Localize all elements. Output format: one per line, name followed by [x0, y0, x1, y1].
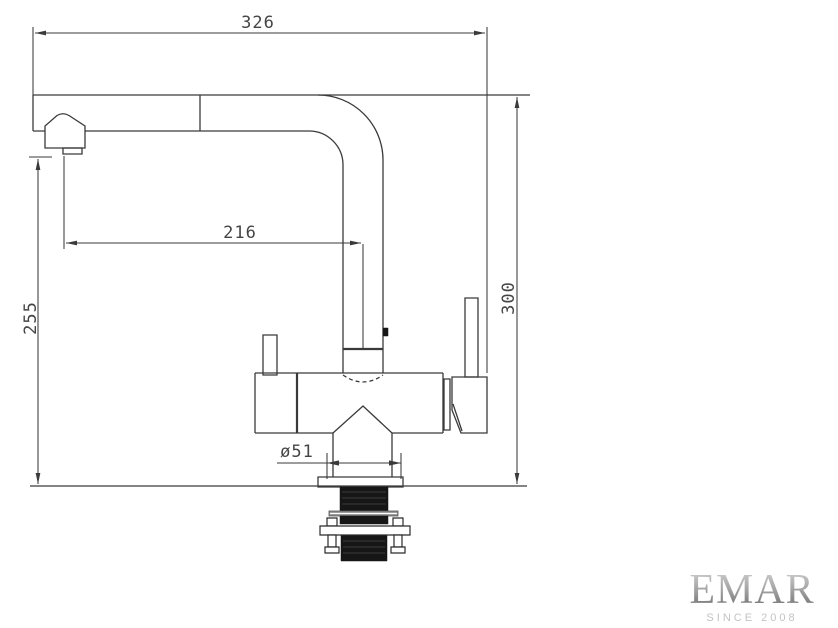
handle-connector [444, 379, 450, 430]
threaded-shank-upper [340, 487, 388, 511]
riser-clip [383, 328, 388, 336]
aerator-head [45, 114, 85, 154]
threaded-shank-lower [341, 535, 387, 561]
brand-tagline: SINCE 2008 [672, 612, 832, 624]
bolt-foot-left [325, 547, 339, 553]
spout-outline [33, 95, 530, 373]
under-counter-assembly [320, 487, 410, 561]
dimension-label-diameter-51: ø51 [280, 442, 314, 462]
dimension-label-326: 326 [241, 13, 275, 33]
left-filter-lever [263, 335, 277, 375]
faucet-technical-drawing: 326 216 255 300 ø51 EMAR SINCE 2 [0, 0, 838, 628]
dimension-label-255: 255 [21, 301, 41, 335]
dimension-spout-reach: 216 [64, 156, 363, 348]
bolt-shaft-right [394, 535, 402, 547]
brand-logo: EMAR SINCE 2008 [672, 570, 832, 624]
bolt-shaft-left [328, 535, 336, 547]
dimension-overall-width: 326 [33, 13, 487, 373]
dimension-spout-height: 255 [21, 157, 52, 484]
right-mixer-handle [444, 298, 487, 433]
dimension-base-diameter: ø51 [277, 442, 401, 479]
aerator-nozzle [63, 148, 82, 154]
arrowhead [389, 460, 401, 465]
dimension-label-216: 216 [223, 223, 257, 243]
mounting-bracket [320, 526, 410, 535]
dimension-overall-height: 300 [499, 97, 519, 484]
bolt-head-left [327, 518, 337, 526]
brand-name: EMAR [672, 570, 832, 610]
drawing-svg: 326 216 255 300 ø51 [0, 0, 838, 628]
base-neck-and-flange [318, 433, 403, 487]
faucet-body [255, 373, 443, 433]
dimension-label-300: 300 [499, 281, 519, 315]
handle-lever-rod [465, 298, 478, 377]
bolt-foot-right [391, 547, 405, 553]
threaded-shank-mid [340, 516, 388, 524]
bolt-head-right [393, 518, 403, 526]
riser-column [343, 328, 388, 382]
